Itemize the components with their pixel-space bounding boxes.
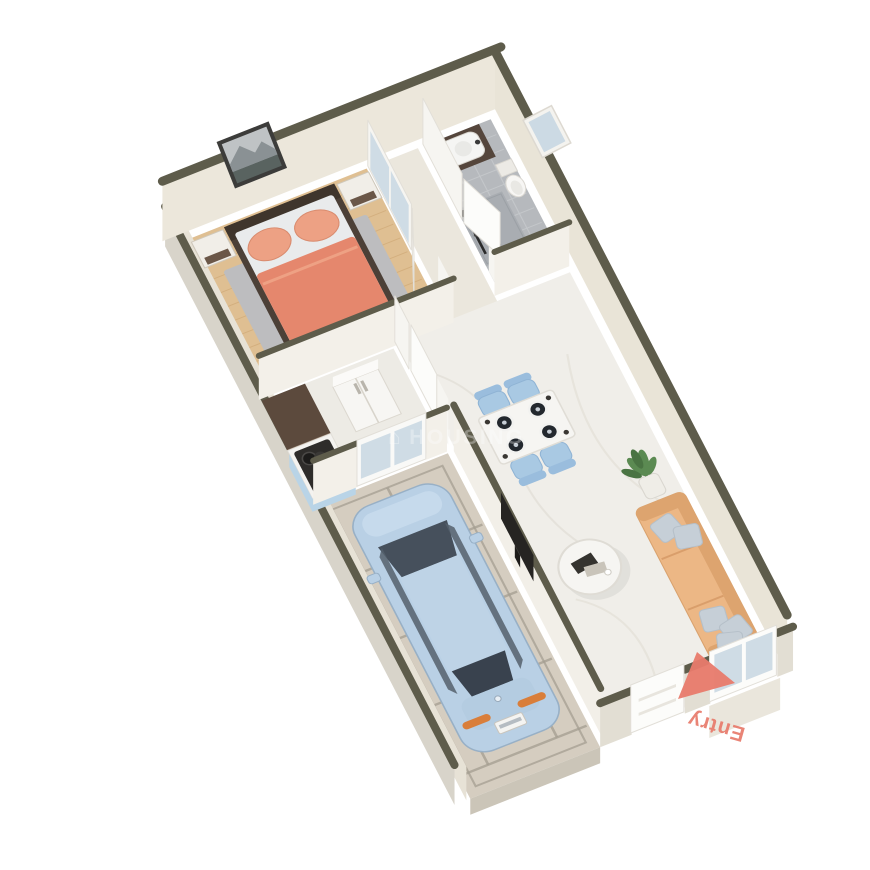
floorplan-image: ⌂HOUSING Entry	[0, 0, 870, 870]
watermark-house-icon: ⌂	[388, 426, 403, 449]
watermark-text: HOUSING	[409, 426, 525, 449]
watermark: ⌂HOUSING	[388, 426, 525, 449]
floorplan-3d-render: ⌂HOUSING Entry	[0, 0, 870, 870]
